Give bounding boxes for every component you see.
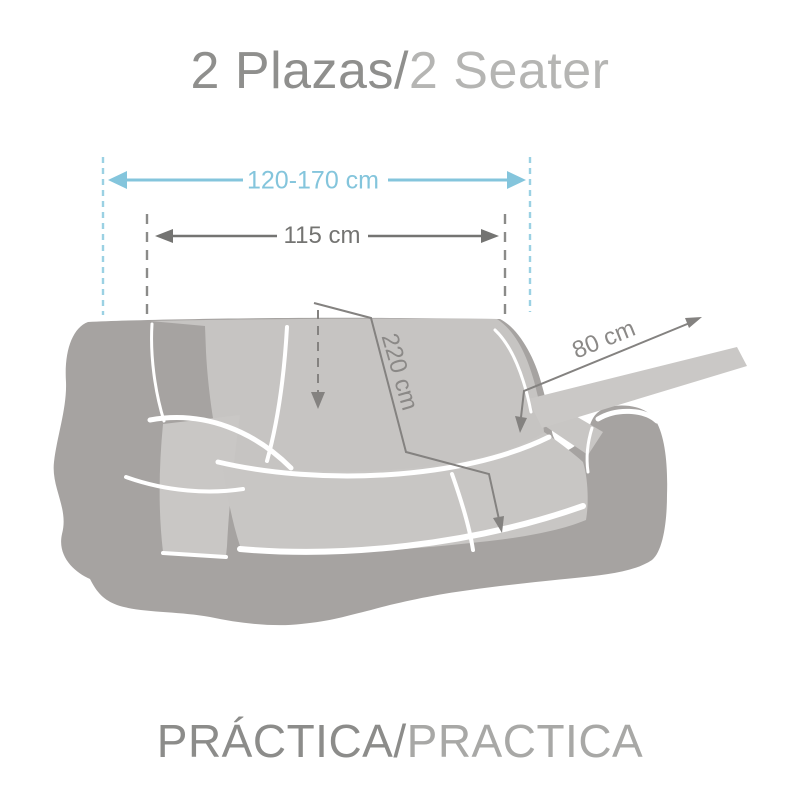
title-primary: 2 Plazas/ [191,42,409,100]
footer-label: PRÁCTICA/PRACTICA [0,714,800,768]
sofa-width-label: 115 cm [284,222,361,250]
cover-width-label: 120-170 cm [247,167,379,196]
title-secondary: 2 Seater [409,42,610,100]
product-diagram: 2 Plazas/2 Seater 120-170 cm 115 cm 220 … [0,0,800,800]
footer-primary: PRÁCTICA/ [157,715,407,767]
page-title: 2 Plazas/2 Seater [0,41,800,101]
footer-secondary: PRACTICA [407,715,644,767]
